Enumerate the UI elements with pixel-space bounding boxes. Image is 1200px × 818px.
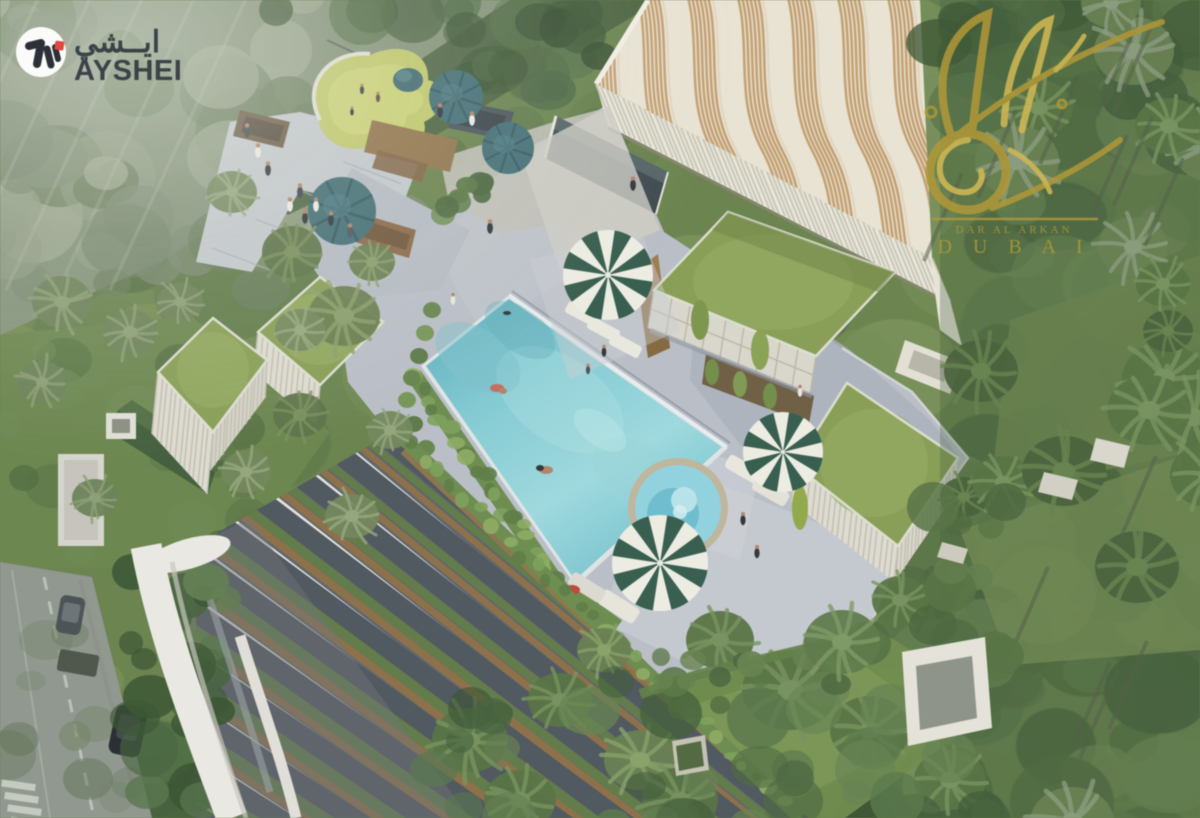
svg-text:AYSHEI: AYSHEI <box>74 55 182 87</box>
